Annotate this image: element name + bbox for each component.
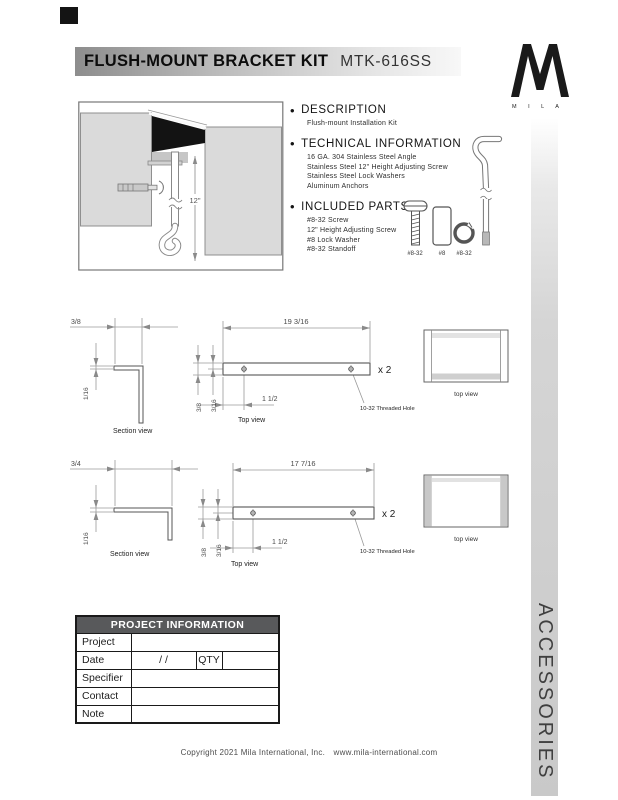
dim-hole-inset: 3/16 (216, 544, 223, 557)
screw-icon (404, 201, 427, 245)
dim-section-thickness: 1/16 (83, 387, 90, 400)
section-line: Flush-mount Installation Kit (307, 119, 520, 129)
table-row: Specifier (76, 669, 279, 687)
title-bar: FLUSH-MOUNT BRACKET KIT MTK-616SS (75, 47, 461, 76)
model-number: MTK-616SS (340, 53, 432, 71)
row-label-date: Date (76, 651, 131, 669)
dim-section-width: 3/8 (71, 319, 81, 326)
top-view-label: Top view (238, 417, 266, 424)
date-value-cell[interactable]: / / (131, 651, 196, 669)
standoff-icon (433, 207, 451, 245)
bullet-icon: • (290, 201, 295, 212)
table-header: PROJECT INFORMATION (76, 616, 279, 633)
table-row: Project (76, 633, 279, 651)
page-title: FLUSH-MOUNT BRACKET KIT (84, 52, 328, 71)
contact-value-cell[interactable] (131, 687, 279, 705)
table-row: Contact (76, 687, 279, 705)
threaded-tip (483, 232, 490, 245)
website-link[interactable]: www.mila-international.com (331, 748, 441, 757)
dim-length: 17 7/16 (290, 459, 315, 468)
spec-sheet-page: FLUSH-MOUNT BRACKET KIT MTK-616SS M I L … (0, 0, 618, 800)
row-label-project: Project (76, 633, 131, 651)
drawing-set-1: 3/8 1/16 Section view 19 3/16 x 2 3/8 3/… (60, 300, 515, 445)
note-value-cell[interactable] (131, 705, 279, 723)
row-label-note: Note (76, 705, 131, 723)
row-label-contact: Contact (76, 687, 131, 705)
section-heading: INCLUDED PARTS (301, 201, 409, 213)
top-view-label: Top view (231, 561, 259, 568)
dim-bar-width: 3/8 (196, 403, 203, 412)
box-label: top view (454, 391, 478, 398)
section-view-label: Section view (110, 551, 150, 558)
angle-section-shape (114, 508, 172, 540)
mila-logo: M I L A (503, 40, 577, 112)
footer: Copyright 2021 Mila International, Inc. … (129, 748, 489, 757)
hole-note: 10-32 Threaded Hole (360, 549, 415, 555)
box-top-view (424, 330, 508, 382)
bullet-icon: • (290, 105, 295, 116)
table-row: Note (76, 705, 279, 723)
section-description: • DESCRIPTION Flush-mount Installation K… (290, 104, 520, 129)
part-label: #8-32 (407, 251, 423, 257)
row-label-specifier: Specifier (76, 669, 131, 687)
install-height-dim: 12" (189, 196, 200, 205)
section-view-label: Section view (113, 428, 153, 435)
bullet-icon: • (290, 138, 295, 149)
section-heading: DESCRIPTION (301, 104, 386, 116)
installation-drawing: 12" (78, 100, 284, 272)
qty-label: x 2 (378, 365, 392, 376)
wall-left (81, 113, 152, 226)
drawing-set-2: 3/4 1/16 Section view 17 7/16 x 2 3/8 3/… (60, 445, 515, 590)
angle-section-shape (114, 366, 143, 423)
dim-hole-offset: 1 1/2 (272, 539, 288, 546)
dim-hole-offset: 1 1/2 (262, 396, 278, 403)
project-info-table: PROJECT INFORMATION Project Date / / QTY… (75, 615, 280, 724)
dim-length: 19 3/16 (283, 317, 308, 326)
copyright-text: Copyright 2021 Mila International, Inc. (178, 748, 329, 757)
qty-label: x 2 (382, 509, 396, 520)
corner-mark (60, 7, 78, 24)
project-value-cell[interactable] (131, 633, 279, 651)
part-label: #8 (439, 251, 446, 257)
qty-value-cell[interactable] (222, 651, 279, 669)
dim-section-width: 3/4 (71, 461, 81, 468)
wall-right (205, 127, 282, 255)
hole-note: 10-32 Threaded Hole (360, 406, 415, 412)
box-label: top view (454, 536, 478, 543)
section-heading: TECHNICAL INFORMATION (301, 138, 461, 150)
specifier-value-cell[interactable] (131, 669, 279, 687)
dim-hole-inset: 3/16 (211, 399, 218, 412)
adjusting-screw-drawing (468, 132, 508, 252)
qty-label-cell: QTY (196, 651, 222, 669)
box-top-view (424, 475, 508, 527)
table-row: Date / / QTY (76, 651, 279, 669)
accessories-label: ACCESSORIES (533, 603, 556, 780)
dim-bar-width: 3/8 (201, 548, 208, 557)
dim-section-thickness: 1/16 (83, 532, 90, 545)
logo-m-icon (511, 44, 569, 97)
